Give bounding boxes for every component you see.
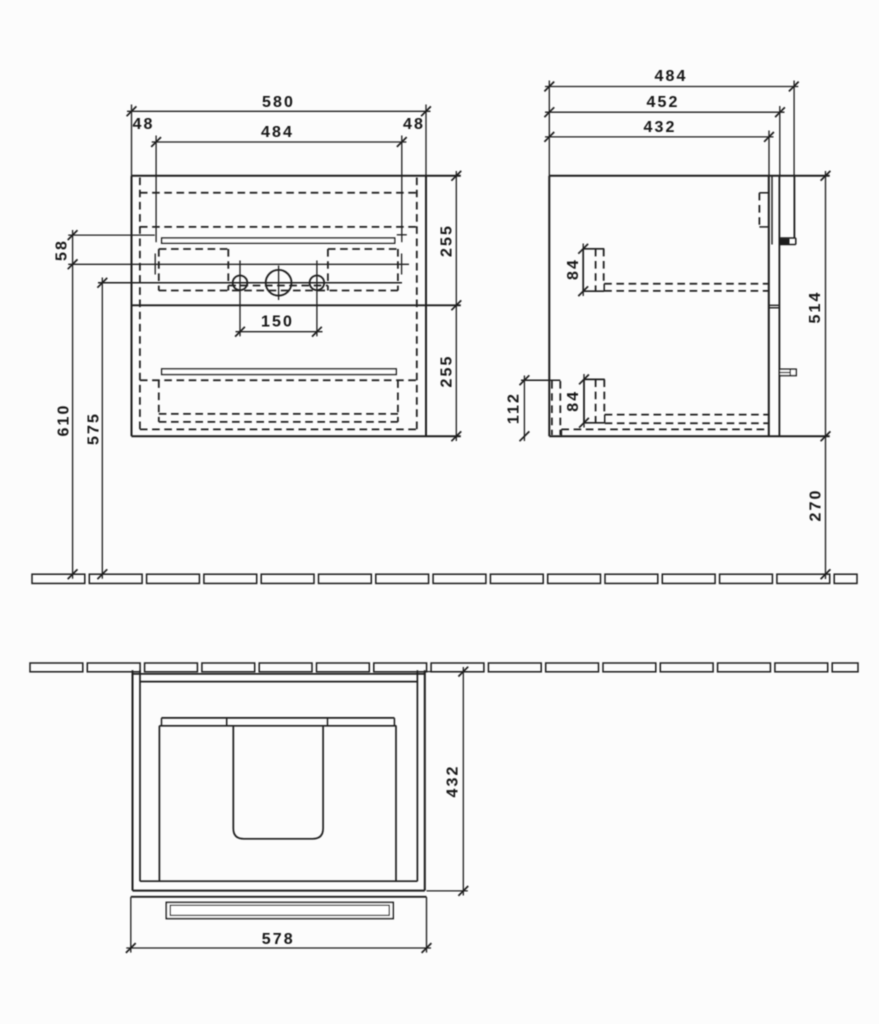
svg-text:578: 578 <box>262 931 295 948</box>
svg-text:48: 48 <box>133 116 155 133</box>
svg-text:452: 452 <box>647 94 680 111</box>
svg-text:484: 484 <box>261 124 294 141</box>
svg-text:432: 432 <box>444 765 461 798</box>
svg-text:48: 48 <box>403 116 425 133</box>
svg-text:270: 270 <box>808 489 825 522</box>
svg-text:484: 484 <box>655 68 688 85</box>
svg-text:150: 150 <box>261 314 294 331</box>
svg-text:432: 432 <box>644 119 677 136</box>
svg-text:58: 58 <box>54 239 71 261</box>
svg-text:112: 112 <box>506 392 523 424</box>
svg-text:84: 84 <box>565 258 582 280</box>
svg-text:255: 255 <box>438 355 455 388</box>
svg-text:514: 514 <box>807 291 824 324</box>
svg-text:255: 255 <box>438 224 455 257</box>
svg-text:610: 610 <box>56 404 73 437</box>
svg-text:575: 575 <box>86 412 103 445</box>
svg-text:580: 580 <box>262 94 295 111</box>
svg-text:84: 84 <box>565 390 582 412</box>
